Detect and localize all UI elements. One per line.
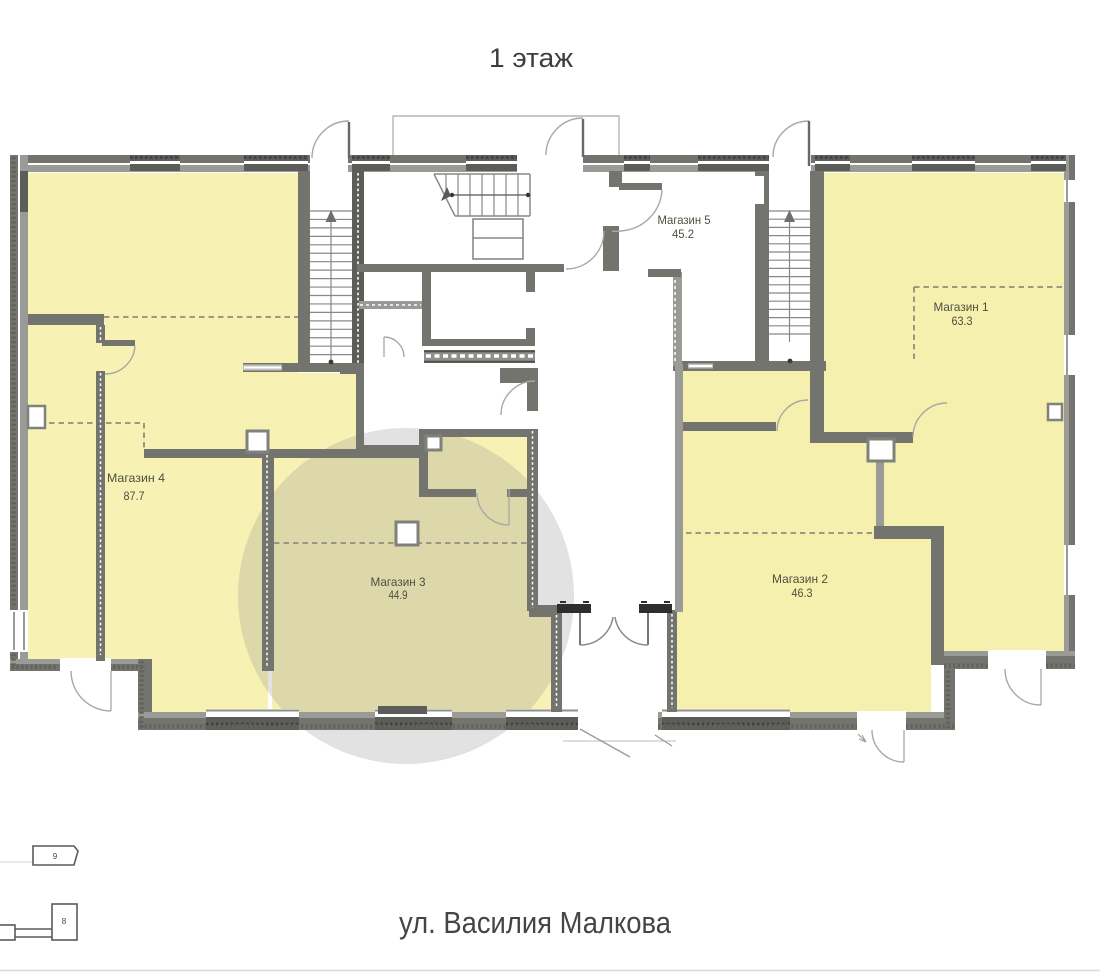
svg-text:ул. Василия Малкова: ул. Василия Малкова [399,905,672,940]
svg-text:44.9: 44.9 [389,588,408,602]
svg-text:Магазин 3: Магазин 3 [371,575,426,589]
svg-text:8: 8 [62,917,67,926]
svg-text:Магазин 4: Магазин 4 [107,471,165,485]
svg-text:87.7: 87.7 [124,489,145,503]
svg-text:45.2: 45.2 [672,227,694,241]
svg-text:1 этаж: 1 этаж [489,43,573,73]
svg-text:Магазин 2: Магазин 2 [772,572,828,586]
svg-text:63.3: 63.3 [952,314,973,328]
svg-text:Магазин 5: Магазин 5 [658,213,711,227]
svg-text:Магазин 1: Магазин 1 [934,300,989,314]
svg-text:46.3: 46.3 [792,586,813,600]
svg-text:9: 9 [53,852,58,861]
